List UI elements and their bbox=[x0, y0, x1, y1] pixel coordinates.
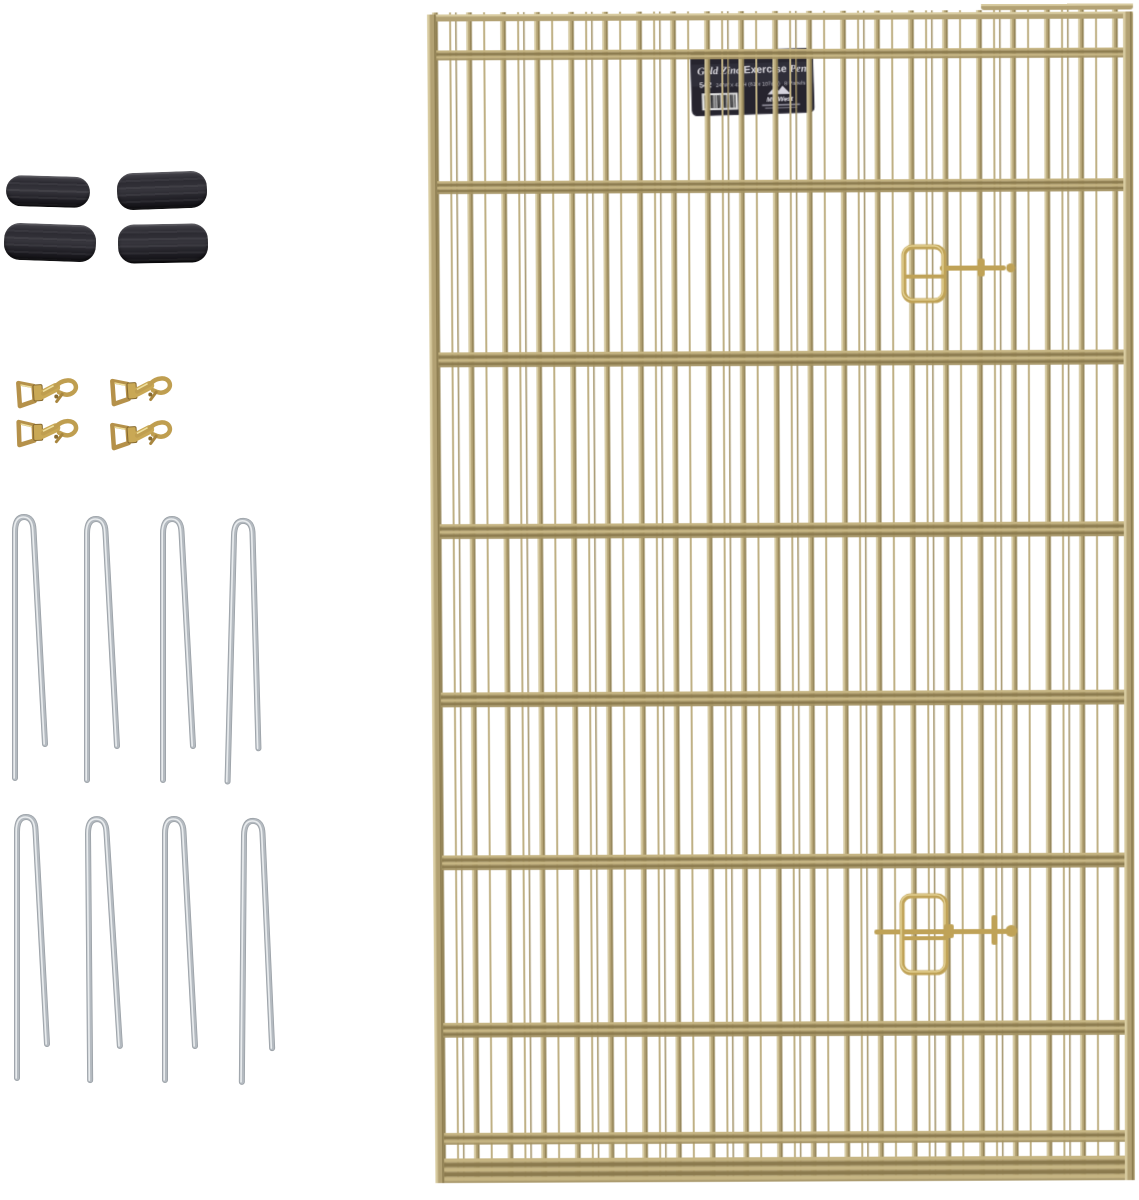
ground-stake bbox=[80, 512, 128, 784]
snap-hook-clip bbox=[109, 412, 178, 457]
ground-stake bbox=[220, 513, 275, 786]
ground-stake bbox=[158, 812, 206, 1084]
ground-stake bbox=[8, 510, 56, 782]
product-photo: Gold ZincExercisePen 54224"W x 42"H (61 … bbox=[0, 0, 1139, 1200]
door-latch bbox=[903, 245, 1015, 300]
rubber-cap bbox=[3, 222, 96, 262]
pen-wire-grid bbox=[427, 3, 1135, 1183]
snap-hook-clip bbox=[15, 411, 82, 453]
ground-stake bbox=[235, 814, 285, 1086]
ground-stake bbox=[10, 810, 58, 1082]
rubber-cap bbox=[116, 170, 207, 210]
snap-hook-clip bbox=[15, 370, 84, 415]
ground-stake bbox=[156, 512, 204, 784]
snap-hook-clip bbox=[109, 368, 178, 413]
rubber-cap bbox=[6, 175, 91, 208]
exercise-pen: Gold ZincExercisePen 54224"W x 42"H (61 … bbox=[425, 3, 1139, 1187]
rubber-cap bbox=[118, 223, 209, 264]
ground-stake bbox=[81, 812, 131, 1084]
exercise-pen-panels: Gold ZincExercisePen 54224"W x 42"H (61 … bbox=[425, 3, 1139, 1187]
